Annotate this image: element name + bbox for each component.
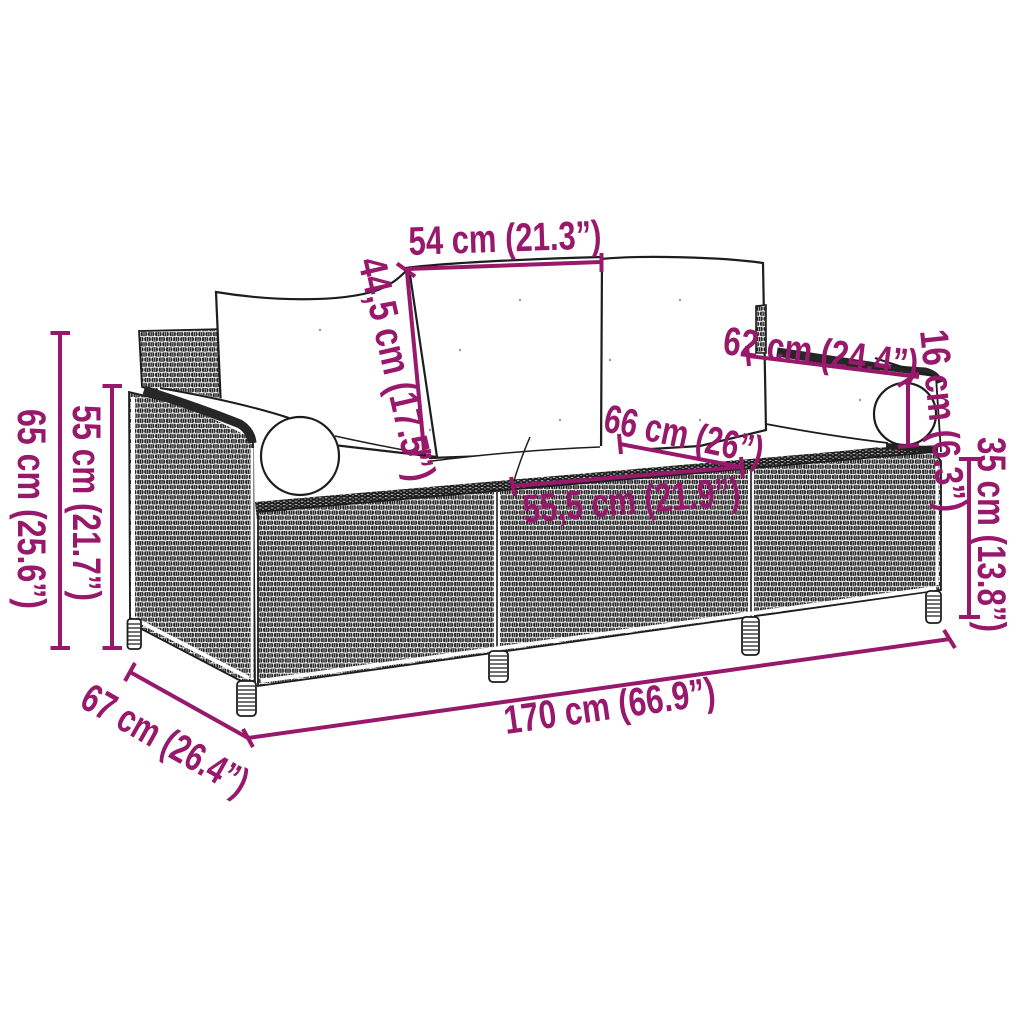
svg-text:65 cm (25.6”): 65 cm (25.6”) <box>9 409 53 609</box>
svg-text:55 cm (21.7”): 55 cm (21.7”) <box>64 405 108 601</box>
svg-text:35 cm (13.8”): 35 cm (13.8”) <box>969 437 1013 632</box>
svg-text:54 cm (21.3”): 54 cm (21.3”) <box>408 213 602 264</box>
